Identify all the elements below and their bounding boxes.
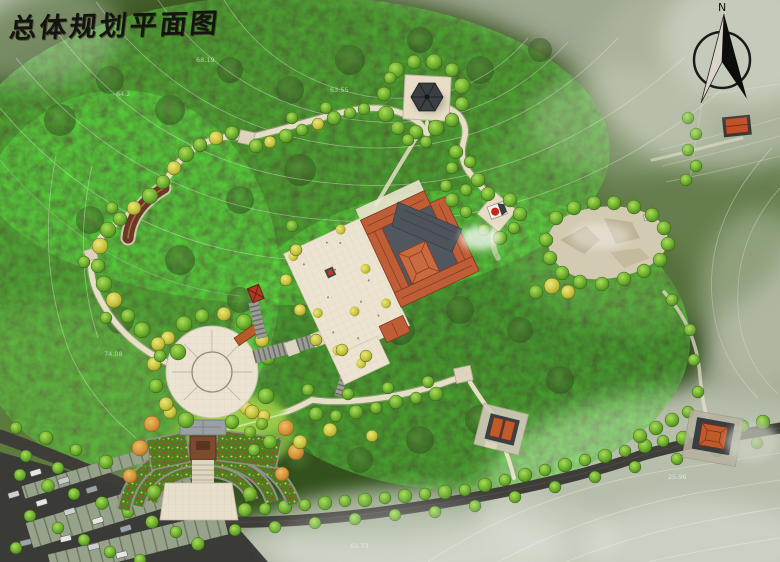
contour-label: 64.2 — [116, 90, 130, 98]
site-plan-drawing: 68.19 63.55 64.2 74.08 63.73 25.96 — [0, 0, 780, 562]
hilltop-pavilion — [403, 75, 451, 121]
compass-label: N — [718, 1, 726, 14]
page-title: 总体规划平面图 — [7, 1, 222, 45]
garden-axis-steps — [192, 460, 214, 485]
contour-label: 63.55 — [330, 86, 349, 94]
contour-label: 25.96 — [668, 473, 687, 481]
contour-label: 74.08 — [104, 350, 123, 358]
rocky-patch — [726, 422, 778, 462]
contour-label: 68.19 — [196, 56, 215, 64]
ne-hermitage-building — [722, 115, 752, 138]
master-plan-canvas: 68.19 63.55 64.2 74.08 63.73 25.96 — [0, 0, 780, 562]
mid-slope-platform — [454, 365, 474, 383]
